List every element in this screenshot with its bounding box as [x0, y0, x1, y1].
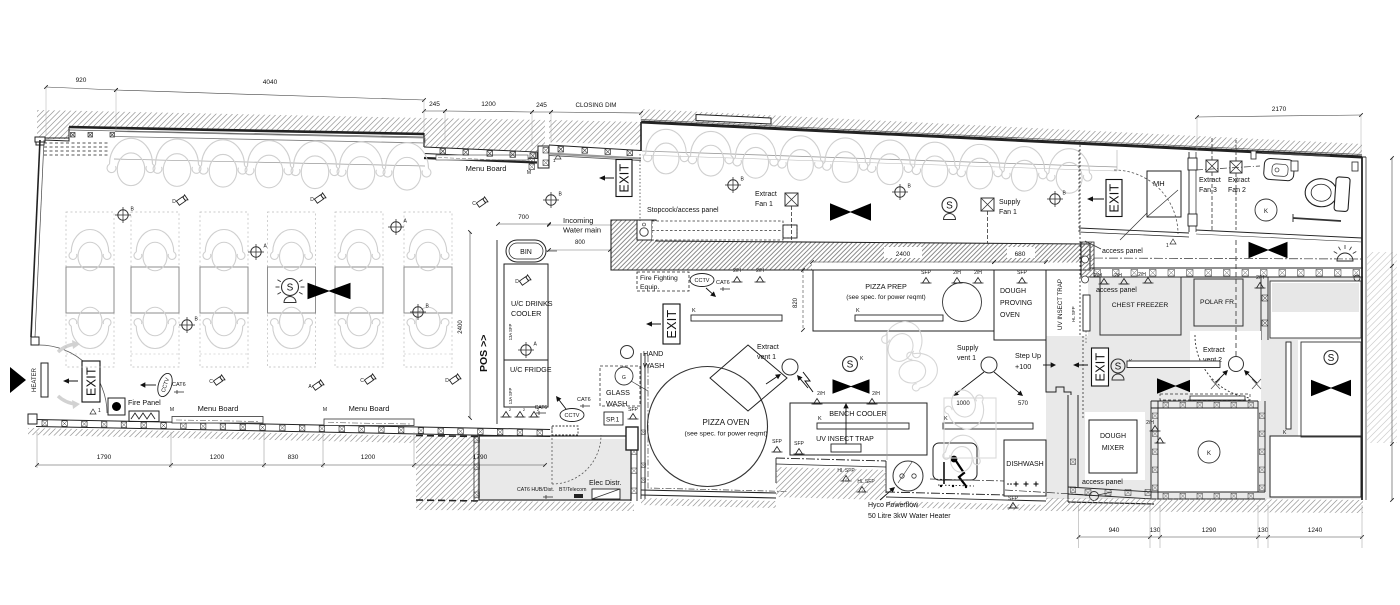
- svg-text:2400: 2400: [458, 320, 464, 334]
- svg-text:HL SFP: HL SFP: [1071, 306, 1076, 322]
- svg-text:MIXER: MIXER: [1102, 445, 1124, 452]
- svg-text:CAT6 HUB/Dist.: CAT6 HUB/Dist.: [517, 487, 554, 493]
- svg-text:CAT6: CAT6: [172, 382, 186, 388]
- svg-text:2/H: 2/H: [1256, 275, 1264, 281]
- svg-text:S: S: [847, 359, 854, 370]
- svg-text:2400: 2400: [896, 251, 911, 258]
- svg-text:1240: 1240: [1308, 527, 1323, 534]
- svg-text:1000: 1000: [956, 401, 970, 407]
- svg-text:Extract: Extract: [755, 191, 777, 198]
- svg-text:SFP: SFP: [628, 407, 638, 413]
- svg-text:570: 570: [1018, 401, 1029, 407]
- svg-text:G: G: [622, 375, 626, 381]
- svg-text:Extract: Extract: [1228, 177, 1250, 184]
- svg-text:PIZZA OVEN: PIZZA OVEN: [702, 418, 749, 427]
- svg-text:COOLER: COOLER: [511, 309, 541, 318]
- svg-text:PIZZA PREP: PIZZA PREP: [865, 282, 907, 291]
- svg-text:HAND: HAND: [643, 349, 663, 358]
- svg-text:D: D: [172, 199, 176, 205]
- svg-text:K: K: [1264, 209, 1268, 215]
- svg-text:C: C: [209, 379, 213, 385]
- svg-text:130: 130: [1258, 527, 1269, 534]
- svg-text:MH: MH: [1153, 179, 1165, 188]
- svg-text:2170: 2170: [1272, 106, 1287, 113]
- svg-text:1200: 1200: [481, 101, 496, 108]
- svg-text:EXIT: EXIT: [1094, 352, 1108, 381]
- svg-text:M: M: [527, 170, 531, 176]
- svg-text:U/C FRIDGE: U/C FRIDGE: [510, 365, 552, 374]
- svg-text:Extract: Extract: [1199, 177, 1221, 184]
- svg-text:1200: 1200: [361, 454, 376, 461]
- svg-text:CHEST FREEZER: CHEST FREEZER: [1112, 302, 1169, 309]
- svg-text:Incoming: Incoming: [563, 216, 593, 225]
- svg-text:2/H: 2/H: [1114, 273, 1122, 279]
- svg-text:Extract: Extract: [757, 344, 779, 351]
- svg-text:POLAR FR.: POLAR FR.: [1200, 299, 1236, 306]
- svg-text:245: 245: [429, 101, 440, 108]
- svg-text:CAT6: CAT6: [716, 280, 730, 286]
- svg-text:HEATER: HEATER: [32, 367, 38, 392]
- svg-text:50 Litre 3kW Water Heater: 50 Litre 3kW Water Heater: [868, 513, 951, 520]
- svg-text:Menu Board: Menu Board: [198, 404, 239, 413]
- svg-text:245: 245: [536, 102, 547, 109]
- svg-text:SP.1: SP.1: [606, 417, 620, 424]
- svg-text:2/H: 2/H: [974, 270, 982, 276]
- svg-text:CLOSING DIM: CLOSING DIM: [576, 102, 617, 109]
- svg-text:(see spec. for power reqmt): (see spec. for power reqmt): [846, 294, 925, 301]
- svg-text:access panel: access panel: [1082, 479, 1123, 486]
- svg-text:Fire Fighting: Fire Fighting: [640, 275, 678, 282]
- svg-text:Supply: Supply: [957, 345, 979, 352]
- svg-text:CAT6: CAT6: [577, 397, 591, 403]
- svg-text:EXIT: EXIT: [665, 309, 679, 338]
- svg-text:C: C: [472, 201, 476, 207]
- svg-text:access panel: access panel: [1096, 287, 1137, 294]
- svg-text:M: M: [170, 407, 174, 413]
- svg-text:Water main: Water main: [563, 226, 601, 235]
- svg-text:WASH: WASH: [606, 399, 627, 408]
- svg-text:OVEN: OVEN: [1000, 312, 1020, 319]
- svg-text:2/H: 2/H: [756, 268, 764, 274]
- svg-text:Stopcock/access panel: Stopcock/access panel: [647, 207, 719, 214]
- svg-text:PROVING: PROVING: [1000, 300, 1032, 307]
- svg-text:DOUGH: DOUGH: [1100, 433, 1126, 440]
- svg-text:Fan 2: Fan 2: [1228, 187, 1246, 194]
- svg-text:BT/Telecom: BT/Telecom: [559, 487, 586, 493]
- svg-text:M: M: [323, 407, 327, 413]
- svg-text:130: 130: [1150, 527, 1161, 534]
- svg-text:K: K: [944, 416, 948, 422]
- svg-text:K: K: [692, 308, 696, 314]
- svg-text:13A SFP: 13A SFP: [508, 324, 513, 341]
- svg-text:UV INSECT TRAP: UV INSECT TRAP: [816, 436, 874, 443]
- svg-text:830: 830: [288, 454, 299, 461]
- svg-text:+100: +100: [1015, 362, 1031, 371]
- svg-text:access panel: access panel: [1102, 248, 1143, 255]
- svg-text:DISHWASH: DISHWASH: [1006, 461, 1043, 468]
- svg-text:SFP: SFP: [1008, 496, 1018, 502]
- svg-text:CCTV: CCTV: [695, 278, 710, 284]
- svg-text:2/H: 2/H: [733, 268, 741, 274]
- svg-text:Fan 1: Fan 1: [999, 209, 1017, 216]
- svg-text:Fire Panel: Fire Panel: [128, 398, 161, 407]
- svg-text:U/C DRINKS: U/C DRINKS: [511, 299, 553, 308]
- svg-text:4040: 4040: [263, 79, 278, 86]
- svg-text:Menu Board: Menu Board: [466, 164, 507, 173]
- svg-text:S: S: [287, 282, 294, 293]
- svg-text:D: D: [310, 197, 314, 203]
- svg-text:Fan 3: Fan 3: [1199, 187, 1217, 194]
- svg-text:2/H: 2/H: [817, 391, 825, 397]
- svg-text:920: 920: [76, 77, 87, 84]
- svg-text:1790: 1790: [97, 454, 112, 461]
- svg-text:13A SFP: 13A SFP: [508, 388, 513, 405]
- svg-text:680: 680: [1015, 251, 1026, 258]
- svg-text:Elec Distr.: Elec Distr.: [589, 478, 621, 487]
- svg-text:2/H: 2/H: [953, 270, 961, 276]
- svg-text:2/H: 2/H: [1094, 273, 1102, 279]
- svg-text:Fan 1: Fan 1: [755, 201, 773, 208]
- svg-text:S: S: [1115, 361, 1122, 372]
- svg-text:EXIT: EXIT: [85, 367, 99, 396]
- svg-text:Equip.: Equip.: [640, 284, 659, 291]
- svg-text:UV INSECT TRAP: UV INSECT TRAP: [1057, 279, 1064, 330]
- svg-text:SFP: SFP: [921, 270, 931, 276]
- svg-text:C: C: [360, 378, 364, 384]
- svg-text:820: 820: [793, 297, 799, 308]
- svg-text:Supply: Supply: [999, 199, 1021, 206]
- svg-text:vent 1: vent 1: [757, 354, 776, 361]
- svg-text:D: D: [515, 279, 519, 285]
- svg-text:SFP: SFP: [794, 441, 804, 447]
- svg-text:S: S: [946, 200, 953, 211]
- svg-text:1: 1: [98, 408, 101, 414]
- svg-text:800: 800: [575, 240, 586, 246]
- svg-text:D: D: [445, 378, 449, 384]
- svg-text:2/H: 2/H: [872, 391, 880, 397]
- svg-text:1790: 1790: [473, 454, 488, 461]
- svg-text:2/H: 2/H: [1146, 420, 1154, 426]
- svg-text:GLASS: GLASS: [606, 388, 630, 397]
- svg-text:700: 700: [518, 214, 529, 221]
- svg-text:Menu Board: Menu Board: [349, 404, 390, 413]
- svg-text:SFP: SFP: [1017, 270, 1027, 276]
- svg-text:DOUGH: DOUGH: [1000, 288, 1026, 295]
- svg-text:K: K: [856, 308, 860, 314]
- svg-text:Step Up: Step Up: [1015, 351, 1041, 360]
- svg-text:EXIT: EXIT: [618, 163, 632, 192]
- svg-text:EXIT: EXIT: [1108, 183, 1122, 212]
- svg-text:POS >>: POS >>: [478, 335, 490, 372]
- svg-text:Extract: Extract: [1203, 347, 1225, 354]
- svg-text:K: K: [818, 416, 822, 422]
- svg-text:S: S: [1328, 353, 1335, 364]
- svg-text:940: 940: [1109, 527, 1120, 534]
- svg-text:1200: 1200: [210, 454, 225, 461]
- svg-text:1290: 1290: [1202, 527, 1217, 534]
- svg-text:(see spec. for power reqmt): (see spec. for power reqmt): [684, 431, 767, 438]
- svg-text:BENCH COOLER: BENCH COOLER: [829, 409, 887, 418]
- svg-text:CCTV: CCTV: [565, 413, 580, 419]
- svg-text:SFP: SFP: [772, 439, 782, 445]
- svg-text:K: K: [1207, 451, 1211, 457]
- svg-text:vent 1: vent 1: [957, 355, 976, 362]
- svg-text:1: 1: [1166, 243, 1169, 249]
- svg-text:WASH: WASH: [643, 361, 664, 370]
- svg-text:CAT6: CAT6: [535, 405, 548, 411]
- svg-text:Hyco Powerflow: Hyco Powerflow: [868, 502, 919, 509]
- svg-text:BIN: BIN: [520, 249, 532, 256]
